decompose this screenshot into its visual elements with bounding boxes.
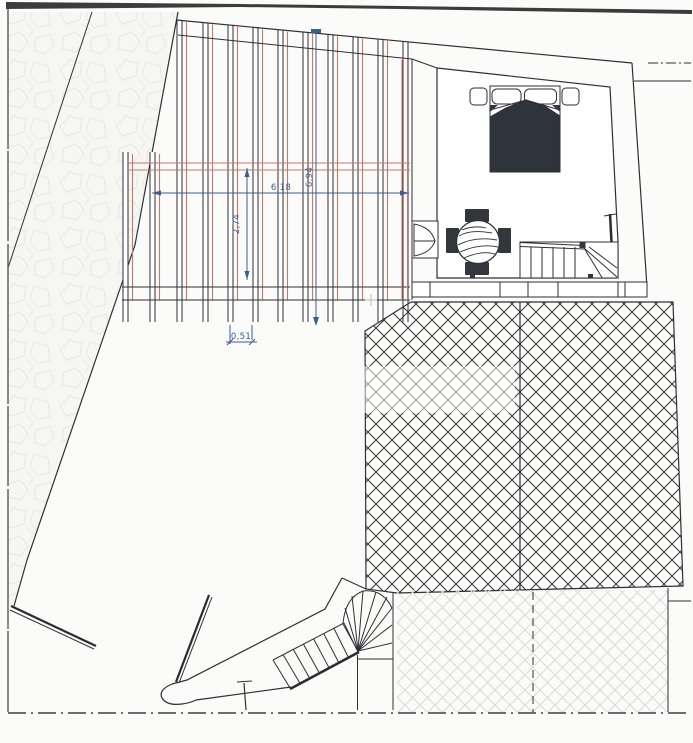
tiled-terrace xyxy=(362,294,683,593)
handrail-left xyxy=(10,606,96,649)
nightstand-left xyxy=(470,88,487,105)
plan-page: 6,18 6,94 2,74 0,51 xyxy=(0,0,693,743)
dim-arrow-top xyxy=(245,168,250,177)
joist-fill xyxy=(228,25,233,322)
handrail-left-shadow xyxy=(10,610,94,649)
handrail-right-bar xyxy=(176,595,209,682)
pillow-left xyxy=(492,89,521,104)
flight-upper-rail xyxy=(273,623,344,660)
walkway-lower-edge xyxy=(161,684,291,704)
flight-treads xyxy=(273,623,358,688)
handrail-post xyxy=(580,242,586,248)
joist-fill xyxy=(378,39,383,322)
rafter-lines-orange xyxy=(133,22,388,300)
door-post xyxy=(610,214,612,242)
dim-label-height-partial: 2,74 xyxy=(232,214,242,234)
joist-fill xyxy=(177,20,182,322)
eave-connector xyxy=(412,59,437,68)
lower-terrace xyxy=(397,588,691,712)
flight-tread xyxy=(303,644,319,672)
flight-tread xyxy=(283,655,300,683)
outer-wall-right xyxy=(632,63,647,287)
flight-tread xyxy=(273,660,290,688)
wall-band-outline xyxy=(412,282,647,297)
dimension-height-partial: 2,74 xyxy=(232,168,250,280)
dim-label-height-total: 6,94 xyxy=(305,167,315,187)
dim-arrow-bottom xyxy=(313,317,319,326)
blanket xyxy=(490,100,560,172)
exterior-stairs xyxy=(10,578,393,710)
dim-top-tick xyxy=(311,29,321,33)
joist-fill xyxy=(278,30,283,322)
handrail-left-bar xyxy=(11,606,96,646)
joist-fill xyxy=(123,152,128,322)
nightstand-right xyxy=(562,88,579,105)
joist-fill xyxy=(253,27,258,322)
joist-fill xyxy=(353,37,358,322)
path-post xyxy=(244,683,246,710)
terrace-tile-area xyxy=(365,302,683,593)
flight-tread xyxy=(324,634,339,663)
bedroom xyxy=(412,63,691,297)
wall-post-left xyxy=(470,274,475,278)
floor-plan-canvas: 6,18 6,94 2,74 0,51 xyxy=(0,0,693,743)
flight-lower-rail xyxy=(290,652,359,689)
joist-fill xyxy=(150,152,155,322)
joist-fill xyxy=(328,34,333,322)
wall-post-right xyxy=(588,274,593,278)
casement-window xyxy=(412,221,438,258)
dim-label-width-total: 6,18 xyxy=(271,183,291,193)
dim-arrow-bottom xyxy=(245,271,250,280)
scan-light-band xyxy=(362,366,515,413)
terrace-wall-band xyxy=(412,282,647,297)
corner-cross-marker xyxy=(365,294,377,306)
flight-tread xyxy=(334,628,348,657)
flight-tread xyxy=(293,649,309,677)
path-post-tick xyxy=(237,681,252,682)
flight-tread xyxy=(314,639,329,668)
joist-fill xyxy=(203,23,208,322)
stair-top-connector xyxy=(342,578,366,589)
dimension-joist-spacing: 0,51 xyxy=(226,325,257,345)
dim-label-joist-spacing: 0,51 xyxy=(231,332,251,342)
